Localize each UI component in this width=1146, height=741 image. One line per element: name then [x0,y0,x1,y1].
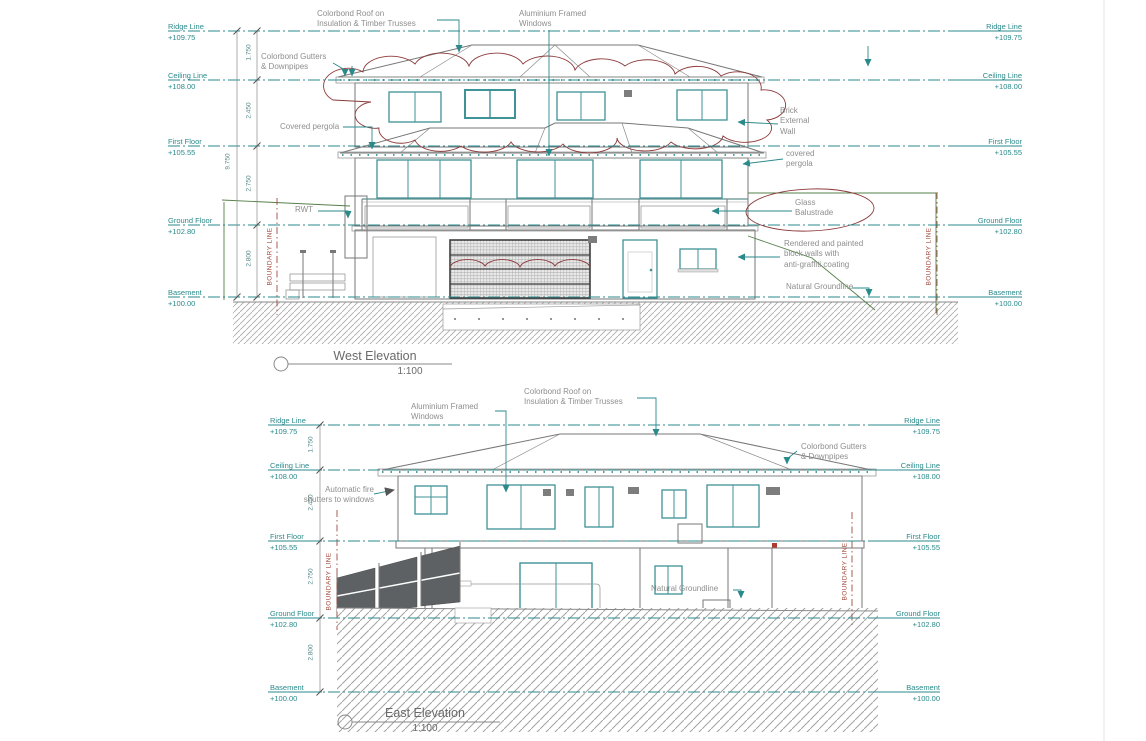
east-right-firstfloor-label: First Floor [878,532,940,541]
east-left-basement-value: +100.00 [270,694,332,703]
west-dim-ff-gf: 2.750 [246,164,253,204]
east-right-groundfloor-label: Ground Floor [878,609,940,618]
west-garage-door [450,240,590,298]
west-note-natural-groundline: Natural Groundline [786,282,853,292]
section-marker [772,543,777,548]
vent [588,236,597,243]
west-note-brick-wall: Brick External Wall [780,106,809,137]
east-right-basement-label: Basement [878,683,940,692]
east-columns [432,548,772,612]
east-elevation-scale: 1:100 [365,723,485,734]
west-entry-door [623,240,657,298]
west-left-firstfloor-value: +105.55 [168,148,230,157]
west-right-basement-value: +100.00 [960,299,1022,308]
west-right-firstfloor-value: +105.55 [960,148,1022,157]
east-right-groundfloor-value: +102.80 [878,620,940,629]
west-first-floor-windows [377,160,722,198]
west-note-glass-balustrade: Glass Balustrade [795,198,833,219]
east-left-firstfloor-label: First Floor [270,532,332,541]
west-note-gutters: Colorbond Gutters & Downpipes [261,52,326,73]
west-note-roof: Colorbond Roof on Insulation & Timber Tr… [317,9,416,30]
east-elevation-title: East Elevation [355,706,495,720]
west-upper-windows [389,90,727,122]
west-dim-gf-basement: 2.800 [246,239,253,279]
east-right-ridge-label: Ridge Line [878,416,940,425]
west-note-rendered-walls: Rendered and painted block walls with an… [784,239,863,270]
east-left-ridge-label: Ridge Line [270,416,332,425]
east-building [337,434,876,616]
east-left-firstfloor-value: +105.55 [270,543,332,552]
west-right-ceiling-value: +108.00 [960,82,1022,91]
west-elevation-title: West Elevation [300,349,450,363]
east-upper-windows [415,485,780,529]
west-left-groundfloor-value: +102.80 [168,227,230,236]
east-dim-ff-gf: 2.750 [308,557,315,597]
east-screen-panels [337,542,460,616]
west-boundary-label-left: BOUNDARY LINE [267,217,274,297]
east-first-floor-slab [396,541,864,548]
east-right-firstfloor-value: +105.55 [878,543,940,552]
west-left-basement-label: Basement [168,288,230,297]
east-right-ridge-value: +109.75 [878,427,940,436]
east-left-groundfloor-label: Ground Floor [270,609,332,618]
west-elevation-scale: 1:100 [350,366,470,377]
west-note-windows: Aluminium Framed Windows [519,9,586,30]
east-boundary-label-right: BOUNDARY LINE [842,532,849,612]
east-note-windows: Aluminium Framed Windows [411,402,478,423]
west-right-groundfloor-label: Ground Floor [960,216,1022,225]
west-pergola-roof [338,123,766,158]
west-right-basement-label: Basement [960,288,1022,297]
west-left-ceiling-value: +108.00 [168,82,230,91]
east-note-roof: Colorbond Roof on Insulation & Timber Tr… [524,387,623,408]
east-boundary-label-left: BOUNDARY LINE [326,542,333,622]
east-left-groundfloor-value: +102.80 [270,620,332,629]
west-dim-overall: 9.750 [225,142,232,182]
west-note-covered-pergola-left: Covered pergola [280,122,339,132]
west-right-firstfloor-label: First Floor [960,137,1022,146]
west-left-basement-value: +100.00 [168,299,230,308]
east-note-fire-shutters: Automatic fire shutters to windows [298,485,374,506]
west-left-ceiling-label: Ceiling Line [168,71,230,80]
west-left-ridge-label: Ridge Line [168,22,230,31]
west-boundary-label-right: BOUNDARY LINE [926,217,933,297]
east-dim-gf-basement: 2.800 [308,633,315,673]
east-upper-wall [398,476,862,541]
west-note-covered-pergola-right: covered pergola [786,149,814,170]
east-left-ridge-value: +109.75 [270,427,332,436]
west-louver-panel [373,237,436,297]
east-right-ceiling-label: Ceiling Line [878,461,940,470]
west-left-groundfloor-label: Ground Floor [168,216,230,225]
west-building [286,45,766,299]
west-main-roof [336,45,764,83]
east-right-ceiling-value: +108.00 [878,472,940,481]
east-lightwell [455,608,491,623]
east-left-ceiling-label: Ceiling Line [270,461,332,470]
west-right-ridge-label: Ridge Line [960,22,1022,31]
west-ground-hatch [233,302,958,344]
east-left-ceiling-value: +108.00 [270,472,332,481]
east-wall-projection [678,524,702,543]
west-right-ridge-value: +109.75 [960,33,1022,42]
west-left-ridge-value: +109.75 [168,33,230,42]
west-left-firstfloor-label: First Floor [168,137,230,146]
east-note-gutters: Colorbond Gutters & Downpipes [801,442,866,463]
drawing-canvas [0,0,1146,741]
east-ground-floor-wall [425,548,862,612]
elevation-sheet: Ridge Line +109.75 Ceiling Line +108.00 … [0,0,1146,741]
west-dim-ridge-ceiling: 1.750 [246,33,253,73]
west-driveway [443,304,640,330]
west-ground-floor-window [678,249,718,272]
west-stair-structure [286,250,345,299]
east-sliding-door [520,563,592,613]
west-right-groundfloor-value: +102.80 [960,227,1022,236]
west-dim-ceiling-ff: 2.450 [246,91,253,131]
east-note-natural-groundline: Natural Groundline [651,584,718,594]
east-dim-ridge-ceiling: 1.750 [308,425,315,465]
east-right-basement-value: +100.00 [878,694,940,703]
west-note-rwt: RWT [295,205,313,215]
west-right-ceiling-label: Ceiling Line [960,71,1022,80]
rainwater-tank [345,196,367,258]
east-left-basement-label: Basement [270,683,332,692]
